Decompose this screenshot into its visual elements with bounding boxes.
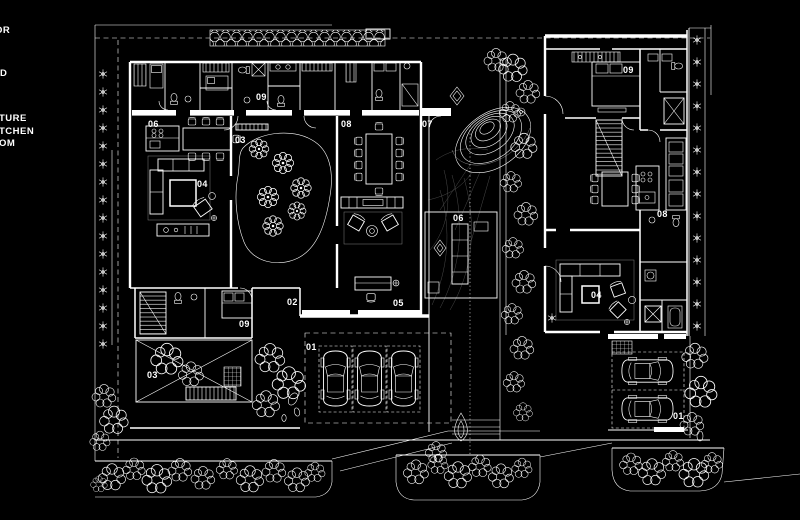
room-label-06-6: 06 bbox=[453, 213, 464, 223]
right-plant-strip bbox=[689, 28, 705, 336]
entry-steps bbox=[452, 413, 500, 441]
street-trees-band-2 bbox=[396, 442, 540, 500]
entry-bridge bbox=[421, 108, 451, 116]
kitchen-06 bbox=[146, 117, 241, 160]
top-strip-fixtures bbox=[134, 62, 418, 106]
dining-right bbox=[590, 172, 639, 206]
bathroom-top-right bbox=[648, 54, 684, 124]
bedroom-wing-09 bbox=[135, 288, 252, 338]
stairs-right bbox=[596, 120, 622, 176]
bedroom-09-right bbox=[572, 52, 640, 112]
room-label-03-10: 03 bbox=[147, 370, 158, 380]
car-3 bbox=[389, 351, 418, 406]
room-label-01-15: 01 bbox=[673, 411, 684, 421]
utility-rooms-right bbox=[645, 216, 682, 328]
garden-trees-mid bbox=[252, 344, 305, 422]
courtyard-03 bbox=[236, 124, 331, 263]
room-label-09-12: 09 bbox=[623, 65, 634, 75]
room-label-03-2: 03 bbox=[235, 135, 246, 145]
garage-01-right bbox=[608, 334, 717, 441]
room-label-08-13: 08 bbox=[657, 209, 668, 219]
room-label-08-4: 08 bbox=[341, 119, 352, 129]
street-trees-band-1 bbox=[91, 458, 332, 497]
left-building-walls bbox=[130, 62, 441, 316]
spiral-landform bbox=[443, 94, 543, 186]
compass-diamond bbox=[450, 87, 464, 105]
path-tree-row bbox=[484, 48, 540, 421]
street-trees-band-3 bbox=[612, 448, 724, 491]
window-wall-band bbox=[132, 110, 420, 315]
car-4 bbox=[622, 358, 673, 385]
room-label-09-0: 09 bbox=[256, 92, 267, 102]
room-label-07-5: 07 bbox=[422, 119, 433, 129]
room-label-02-7: 02 bbox=[287, 297, 298, 307]
central-path-07 bbox=[421, 48, 543, 456]
annex-06 bbox=[425, 212, 497, 298]
lounge-and-office-05 bbox=[344, 212, 402, 302]
living-room-04 bbox=[148, 156, 217, 236]
floor-plan-drawing: 09060304080706020509030109080401 ORDTURE… bbox=[0, 0, 800, 520]
floor-plan-canvas: 09060304080706020509030109080401 ORDTURE… bbox=[0, 0, 800, 520]
car-1 bbox=[321, 351, 350, 406]
car-2 bbox=[355, 351, 384, 406]
street bbox=[91, 431, 800, 500]
driveway-lines bbox=[332, 431, 800, 482]
room-label-01-11: 01 bbox=[306, 342, 317, 352]
legend-fragment-OR-0: OR bbox=[0, 25, 10, 36]
room-label-04-3: 04 bbox=[197, 179, 208, 189]
top-hedge-band bbox=[210, 30, 385, 46]
legend-fragment-TURE-2: TURE bbox=[0, 113, 27, 124]
room-label-09-9: 09 bbox=[239, 319, 250, 329]
room-label-06-1: 06 bbox=[148, 119, 159, 129]
legend-fragment-D-1: D bbox=[0, 68, 7, 79]
legend-fragment-TCHEN-3: TCHEN bbox=[0, 126, 34, 137]
right-building bbox=[545, 30, 687, 336]
kitchen-08-right bbox=[636, 138, 686, 210]
dining-room-08 bbox=[341, 122, 404, 208]
legend-fragment-OM-4: OM bbox=[0, 138, 15, 149]
car-5 bbox=[622, 396, 673, 423]
left-plant-strip bbox=[90, 69, 128, 450]
room-label-05-8: 05 bbox=[393, 298, 404, 308]
legend-fragments: ORDTURETCHENOM bbox=[0, 25, 34, 149]
room-label-04-14: 04 bbox=[591, 290, 602, 300]
left-building bbox=[130, 62, 497, 428]
